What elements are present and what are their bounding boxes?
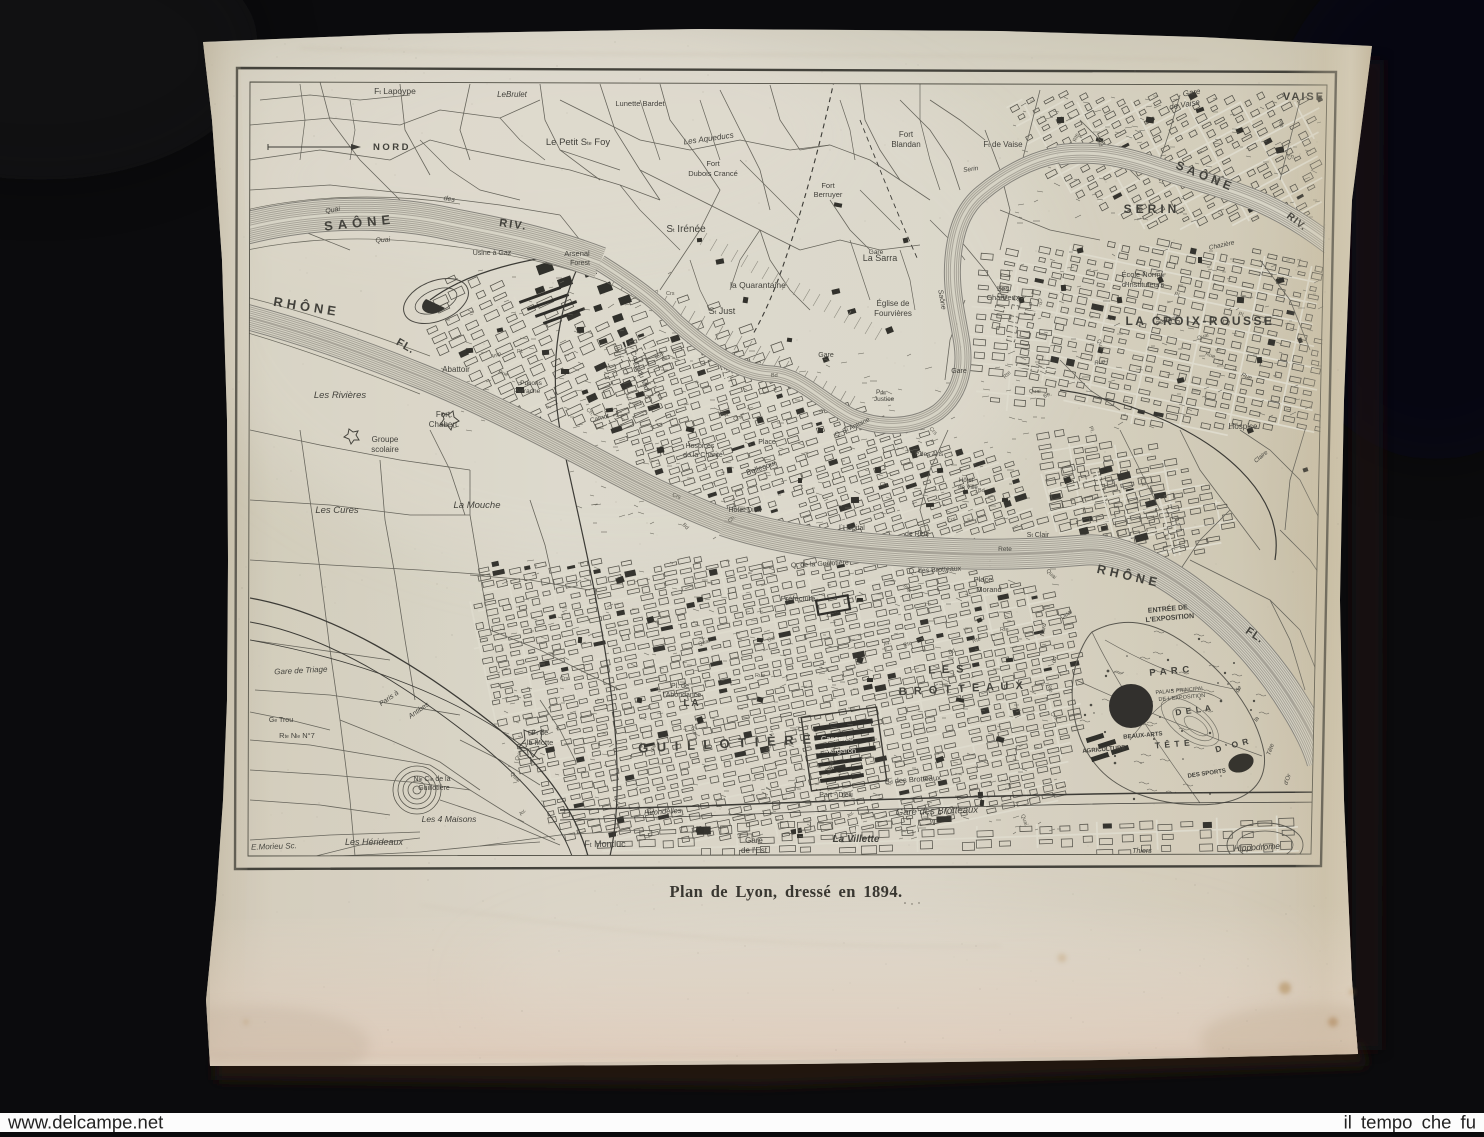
svg-text:Plan de Lyon, dressé en 1894.: Plan de Lyon, dressé en 1894. (669, 882, 902, 901)
svg-text:il tempo che fu: il tempo che fu (1344, 1112, 1476, 1133)
svg-text:www.delcampe.net: www.delcampe.net (7, 1112, 163, 1133)
